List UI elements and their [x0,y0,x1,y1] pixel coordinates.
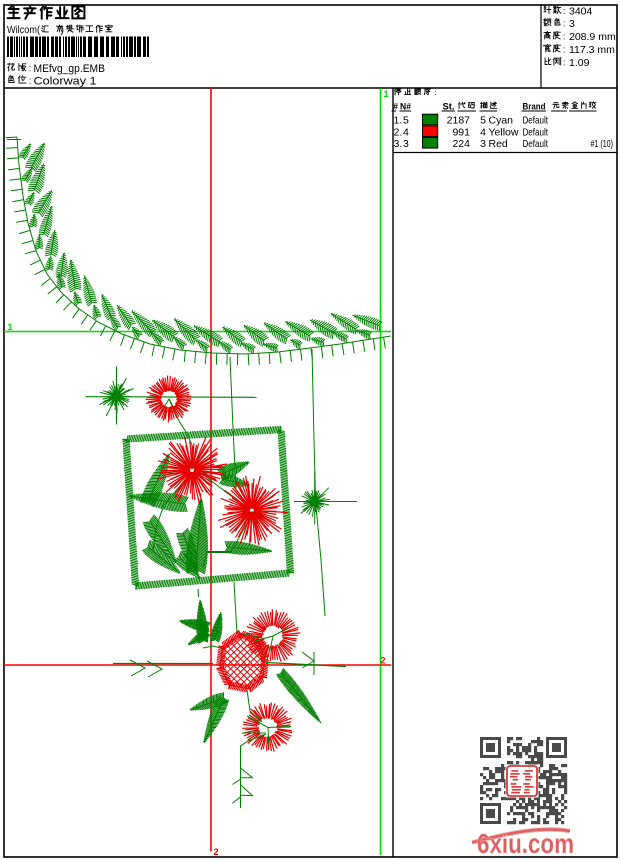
svg-text:MEfvg_gp.EMB: MEfvg_gp.EMB [34,63,106,75]
svg-text:Default: Default [523,138,549,150]
svg-text:3: 3 [480,138,486,150]
svg-text:2187: 2187 [447,115,471,127]
svg-text:Red: Red [489,138,508,150]
svg-text:Yellow: Yellow [489,126,519,138]
svg-text:4: 4 [480,126,486,138]
svg-text:991: 991 [452,126,470,138]
svg-text:1.: 1. [394,115,403,127]
svg-text:2.: 2. [394,126,403,138]
svg-text:St.: St. [443,102,455,112]
svg-text:1.09: 1.09 [569,57,590,69]
svg-text:): ) [61,24,65,36]
svg-text:#1 (10): #1 (10) [591,138,614,150]
svg-text:3.: 3. [394,138,403,150]
svg-text:1: 1 [384,89,389,99]
svg-text:Cyan: Cyan [489,115,514,127]
svg-text:117.3 mm: 117.3 mm [569,44,615,56]
svg-text:3404: 3404 [569,6,593,18]
svg-text:2: 2 [381,656,386,666]
svg-text:3: 3 [569,18,575,30]
svg-text:Wilcom(: Wilcom( [7,24,40,36]
svg-text:5: 5 [480,115,486,127]
svg-text:5: 5 [403,115,409,127]
svg-text:1: 1 [8,322,13,332]
svg-text:Brand: Brand [523,102,546,112]
svg-text:4: 4 [403,126,409,138]
svg-text:Default: Default [523,115,549,127]
svg-text:N#: N# [400,102,411,112]
svg-text:#: # [393,102,398,112]
svg-text:Colorway 1: Colorway 1 [34,76,97,88]
svg-text:3: 3 [403,138,409,150]
svg-text:2: 2 [214,847,219,857]
svg-text:208.9 mm: 208.9 mm [569,31,616,43]
svg-text:Default: Default [523,126,549,138]
svg-text:6xiu.com: 6xiu.com [477,828,574,859]
svg-text:224: 224 [452,138,470,150]
